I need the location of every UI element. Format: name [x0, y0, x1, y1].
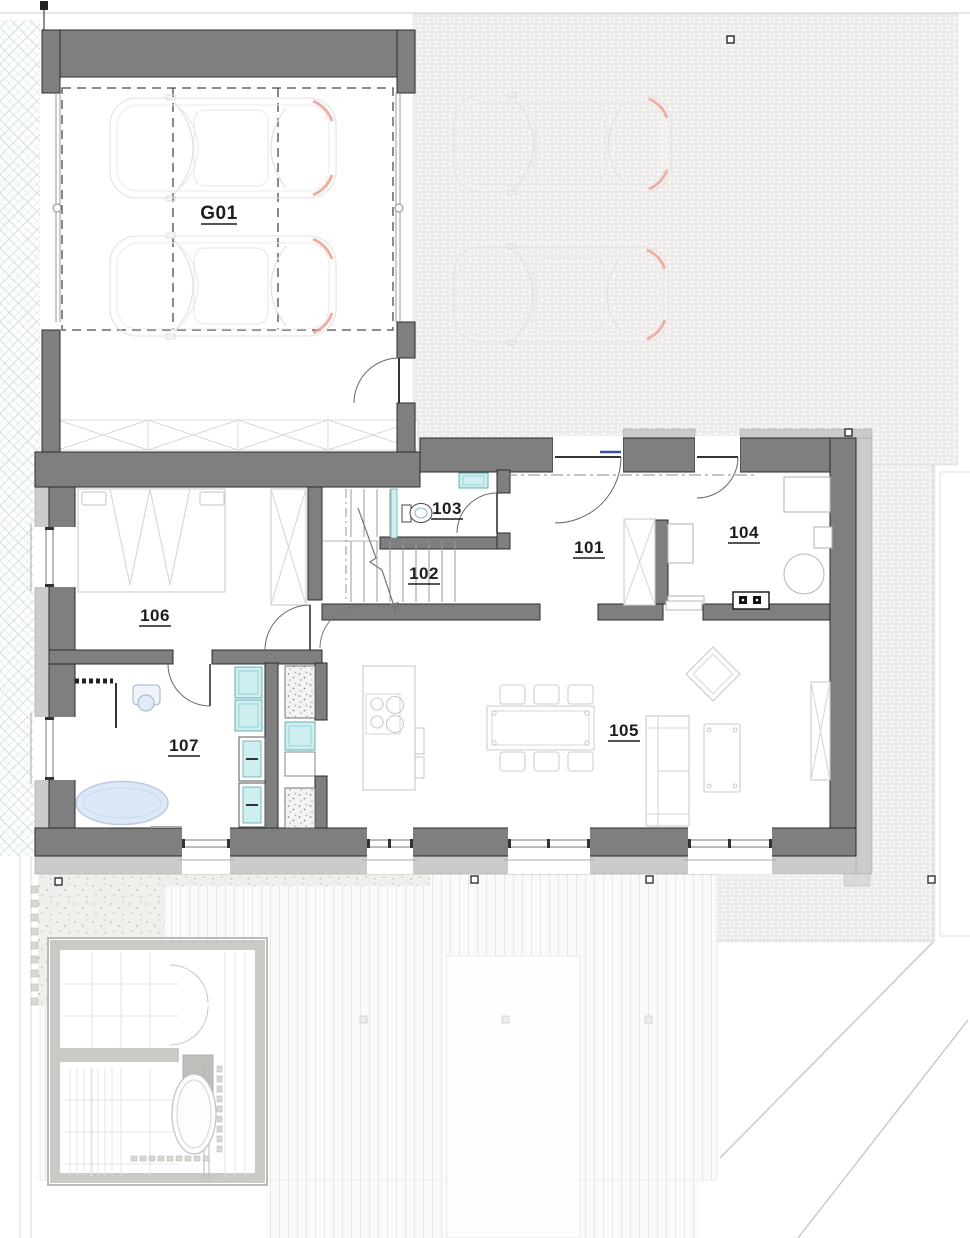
kitchen-island [363, 666, 424, 790]
room-label-wc: 103 [432, 499, 462, 518]
installation-shaft-1 [285, 666, 315, 718]
room-label-hall: 101 [574, 538, 604, 557]
tv-cabinet [811, 682, 830, 780]
terrace-inlay-panel [447, 956, 580, 1238]
floor-plan-canvas: G01 [0, 0, 970, 1238]
wardrobe-hall [624, 519, 655, 605]
dining-chair [568, 685, 593, 704]
entry-door-2-opening [695, 436, 740, 474]
window-west-bedroom [31, 523, 77, 591]
dining-table [487, 706, 594, 750]
outbuilding-partition-wall [59, 1048, 179, 1062]
wall-niche-bench [666, 601, 702, 610]
room-label-staircase: 102 [409, 564, 439, 583]
entry-door-1-opening [553, 436, 623, 474]
window-south-kitchen [363, 824, 417, 874]
installation-shaft-2 [285, 788, 315, 828]
neighbor-plot-outline [940, 472, 970, 936]
garage-storage-strip [58, 420, 418, 450]
paved-driveway [413, 14, 958, 465]
room-label-office: 104 [729, 523, 759, 542]
toilet-wc [402, 504, 432, 523]
room-label-bathroom: 107 [169, 736, 199, 755]
dining-set [487, 685, 594, 771]
garden-outbuilding [48, 938, 267, 1185]
cabinet-office [668, 524, 693, 563]
bathtub [76, 782, 168, 825]
room-label-garage: G01 [200, 203, 237, 224]
room-label-bedroom: 106 [140, 606, 170, 625]
dining-chair [500, 752, 525, 771]
desk [784, 477, 830, 512]
double-bed [78, 489, 225, 592]
hot-tub [172, 1074, 216, 1154]
paved-patch-south [715, 876, 935, 942]
dining-chair [534, 685, 559, 704]
office-chair [784, 554, 824, 594]
paved-side-path [868, 465, 935, 880]
side-table [814, 527, 832, 548]
dining-chair [500, 685, 525, 704]
exterior-step-block [844, 874, 870, 886]
appliance-symbol [733, 592, 769, 609]
window-south-living [684, 824, 776, 874]
room-label-living: 105 [609, 721, 639, 740]
house: 106 102 [31, 429, 935, 886]
wardrobe-bedroom [271, 489, 306, 605]
drain-marker-icon [727, 36, 734, 43]
garage-room: G01 [42, 30, 418, 454]
site-diagonal-line-1 [720, 942, 933, 1158]
floor-plan-drawing: G01 [0, 0, 970, 1238]
survey-marker-icon [40, 1, 48, 10]
window-south-bathroom [178, 824, 234, 874]
garage-door-handle-right [395, 204, 403, 212]
coffee-table [704, 724, 740, 792]
window-south-dining [504, 824, 594, 874]
stair-glass-screen [391, 489, 397, 538]
dining-chair [568, 752, 593, 771]
kitchen-counter [285, 752, 315, 776]
sofa [646, 716, 689, 826]
dining-chair [534, 752, 559, 771]
window-west-bathroom [31, 713, 77, 784]
garage-door-handle-left [53, 204, 61, 212]
